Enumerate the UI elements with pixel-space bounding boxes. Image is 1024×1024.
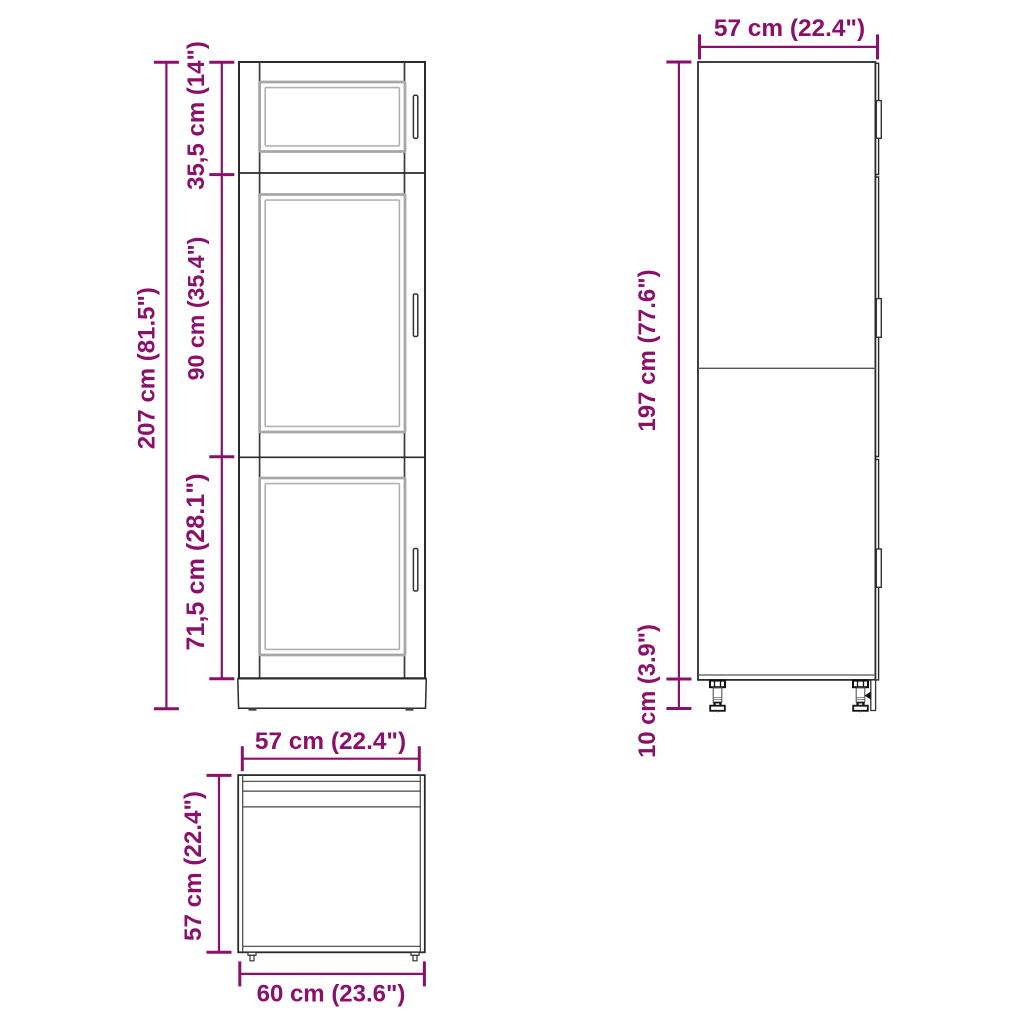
svg-text:197 cm (77.6"): 197 cm (77.6")	[634, 269, 661, 431]
svg-text:57 cm (22.4"): 57 cm (22.4")	[714, 15, 865, 42]
svg-text:90 cm (35.4"): 90 cm (35.4")	[183, 237, 209, 381]
svg-text:57 cm (22.4"): 57 cm (22.4")	[255, 728, 406, 755]
svg-text:35,5 cm (14"): 35,5 cm (14")	[183, 41, 210, 190]
svg-text:60 cm (23.6"): 60 cm (23.6")	[257, 981, 406, 1008]
svg-text:57 cm (22.4"): 57 cm (22.4")	[180, 791, 207, 941]
svg-text:71,5 cm (28.1"): 71,5 cm (28.1")	[182, 473, 210, 650]
svg-text:10 cm (3.9"): 10 cm (3.9")	[635, 624, 661, 758]
svg-text:207 cm (81.5"): 207 cm (81.5")	[134, 287, 161, 449]
